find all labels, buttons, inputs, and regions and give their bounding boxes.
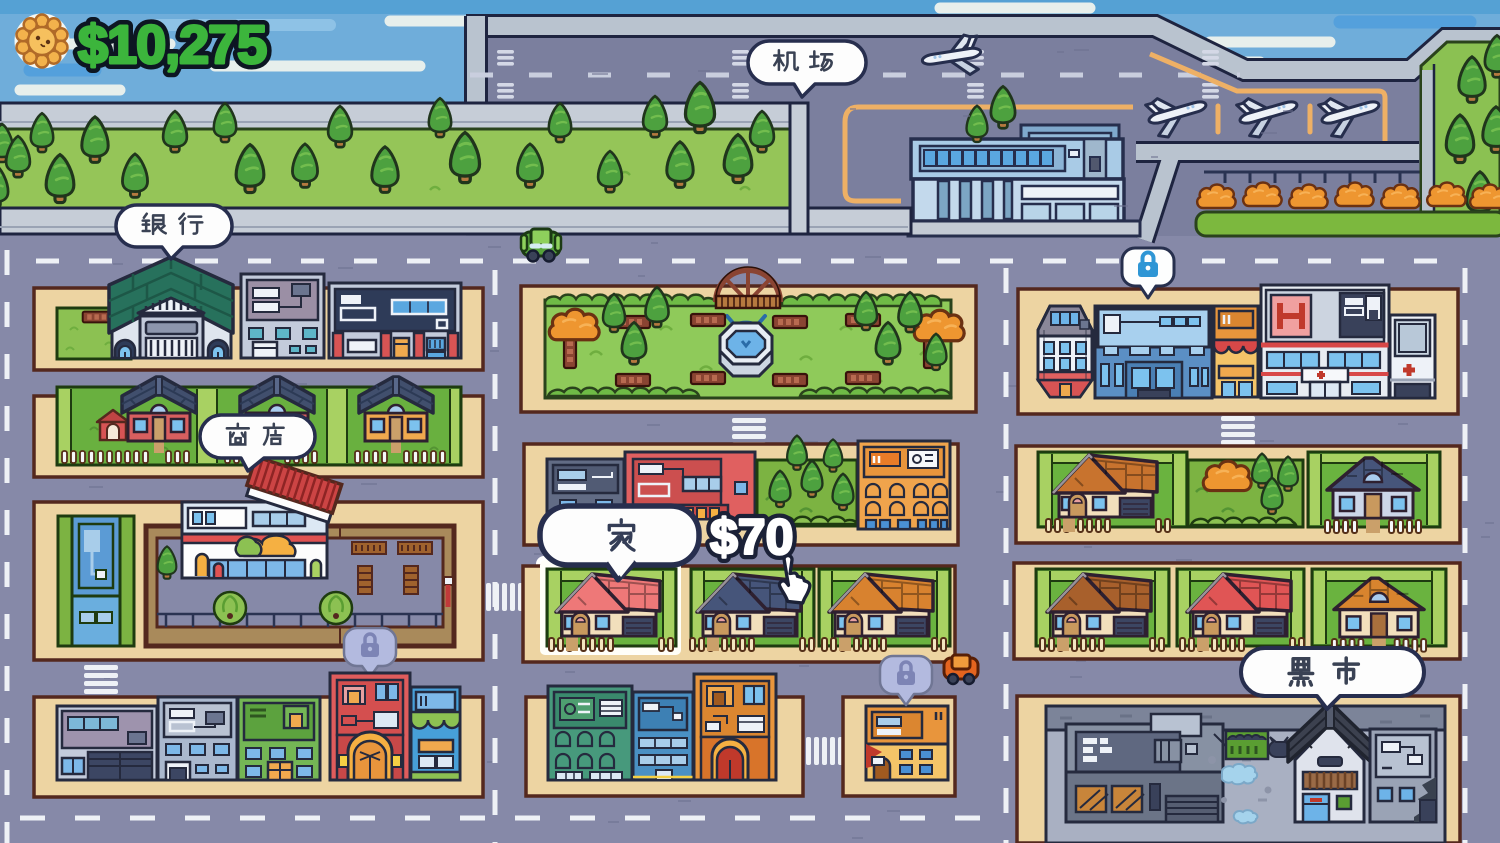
svg-text:$70: $70 [710, 509, 793, 565]
svg-text:$10,275: $10,275 [78, 15, 266, 75]
